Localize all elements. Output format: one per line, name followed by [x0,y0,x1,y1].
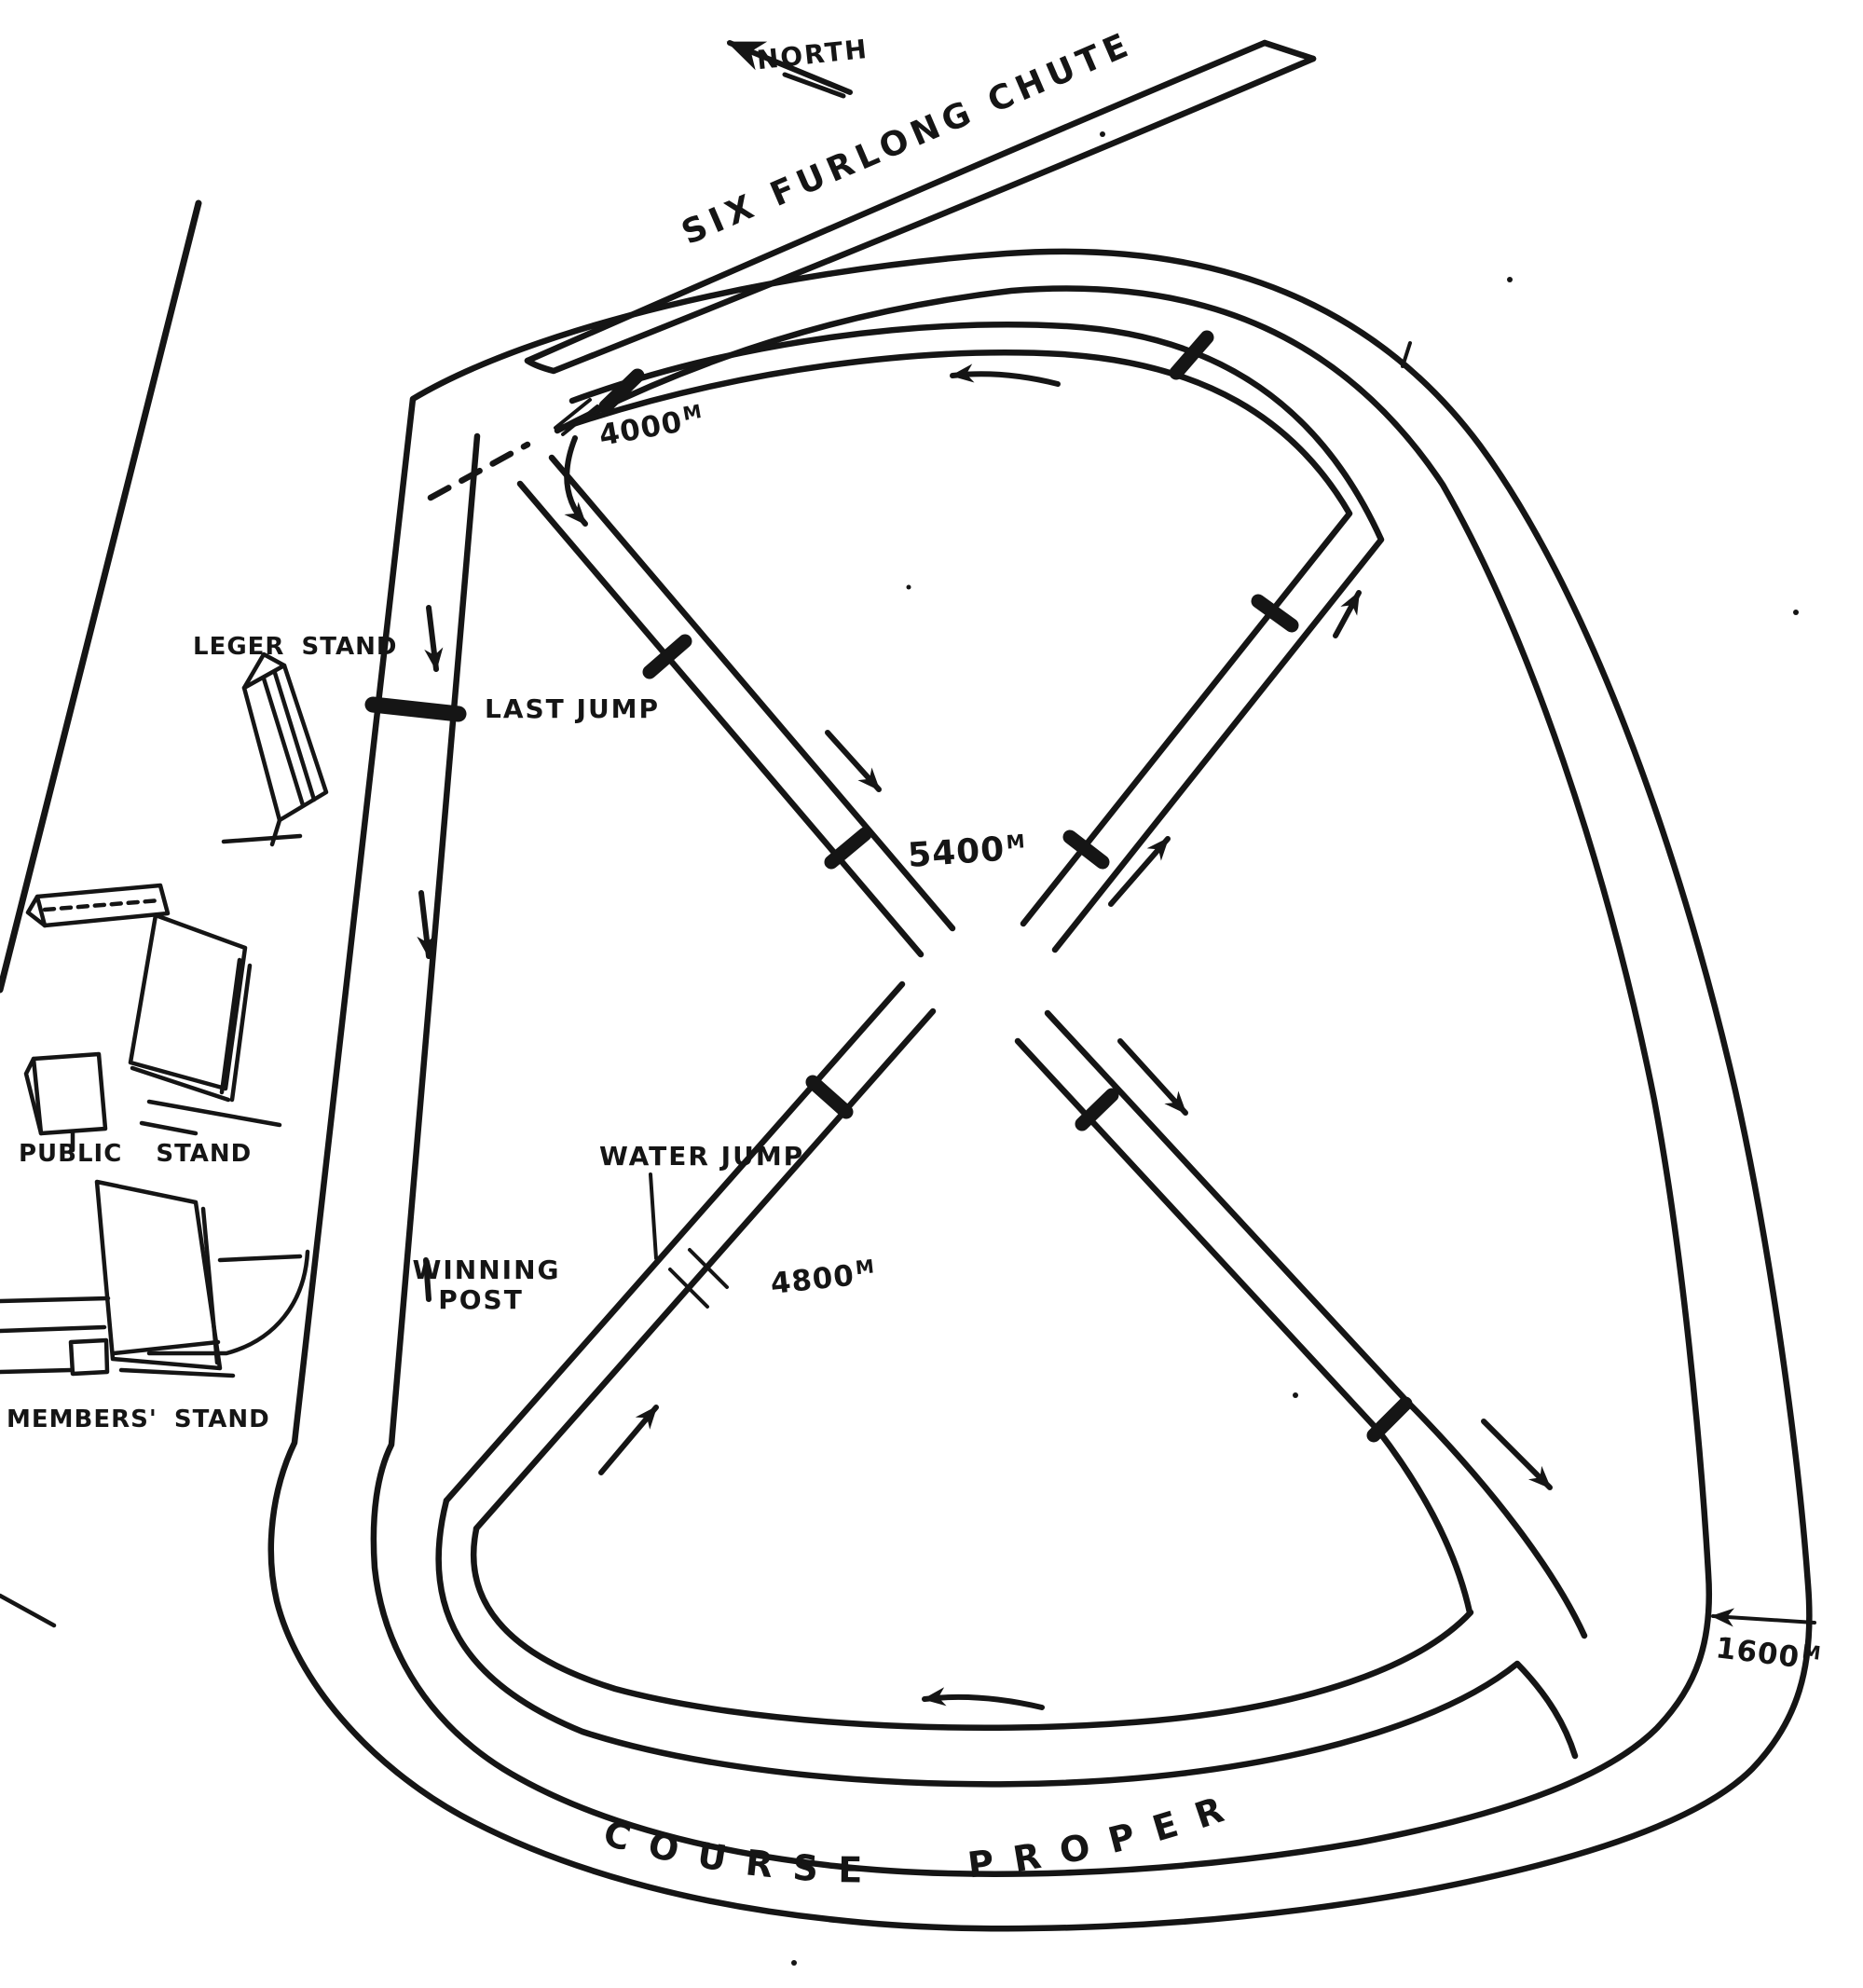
public-stand-base-line-2 [149,1102,280,1125]
ink-speck [1793,610,1799,615]
chute-lower-edge [527,59,1313,371]
chute-label: SIX FURLONG CHUTE [677,25,1139,253]
se-diagonal-north-rail [1048,1013,1584,1636]
arrow-left-straight-down-2 [421,893,429,956]
arrow-se-diagonal-down-2 [1484,1421,1550,1488]
arrow-nw-diagonal-down [828,733,879,789]
public-stand: PUBLIC STAND [19,885,280,1168]
public-stand-annex-dashes [45,900,160,910]
marker-5400m-label: 5400M [907,829,1028,875]
leger-stand-base-tail [272,820,280,844]
ink-speck [1100,131,1105,137]
north-label: NORTH [755,34,870,75]
last-jump-bar [373,705,459,714]
arrow-sw-diagonal-up [601,1407,656,1473]
ink-speck [1293,1392,1298,1398]
public-stand-base-line-3 [142,1123,196,1133]
boundary-line [0,203,199,990]
members-stand-label: MEMBERS' STAND [7,1405,270,1433]
members-stand-access-line [220,1256,300,1260]
members-stand-edge-line [203,1209,217,1363]
arrow-bottom-straight-left [925,1697,1042,1707]
jumps [373,337,1815,1623]
ink-speck [791,1960,797,1966]
start-line-1600m [1713,1616,1815,1623]
members-stand-access-curve [149,1252,308,1353]
members-stand-diagonal-2 [121,1370,233,1376]
public-stand-main-outline [130,915,245,1089]
ink-specks [791,131,1799,1966]
ink-speck [1507,277,1513,282]
members-stand-small-box [71,1340,107,1374]
course-proper-inner-rail [374,289,1709,1874]
members-stand-fence-2 [0,1327,104,1331]
junction-dashed-line [431,445,527,498]
public-stand-label: PUBLIC STAND [19,1140,252,1168]
winning-post-label-line2: POST [438,1284,524,1315]
direction-arrows [421,374,1550,1707]
jump-se-diagonal-mid [1374,1404,1405,1435]
arrow-ne-curve-up [1336,593,1359,636]
jump-sw-diagonal-near-cross [813,1082,846,1112]
chute-end-cap [1265,43,1313,59]
arrow-junction-curve-down [567,438,585,524]
marker-4800m-label: 4800M [769,1254,878,1301]
members-stand-fence-1 [0,1298,108,1301]
racecourse-map: NORTH SIX FURLONG CHUTE COURSE PROPER [0,0,1863,1988]
leger-stand-underline [224,836,300,842]
six-furlong-chute: SIX FURLONG CHUTE [527,25,1313,371]
winning-post-label-line1: WINNING [412,1254,560,1285]
course-proper-outer-rail [271,252,1810,1928]
arrow-left-straight-down-1 [429,608,436,669]
steeple-bottom-loop-outer-rail [439,1501,1575,1784]
arrow-top-straight-left [952,374,1058,384]
ink-speck [907,585,911,590]
water-jump-label: WATER JUMP [599,1141,804,1172]
course-proper-track: COURSE PROPER [271,252,1810,1928]
members-stand-corner-line [0,1596,54,1625]
jump-se-diagonal-near-cross [1082,1095,1112,1124]
winning-post-tick [426,1260,429,1299]
public-stand-small-box-outline [34,1054,105,1133]
north-compass: NORTH [730,34,870,96]
members-stand: MEMBERS' STAND [0,1182,308,1625]
water-jump-pointer-line [651,1174,656,1258]
steeplechase-course [439,324,1584,1784]
last-jump-label: LAST JUMP [485,693,660,724]
leger-stand-label: LEGER STAND [193,633,397,661]
sw-diagonal-west-rail [446,984,902,1501]
jump-nw-diagonal-near-cross [831,834,865,862]
course-proper-label: COURSE PROPER [599,1783,1248,1892]
members-stand-fence-3 [0,1370,71,1372]
